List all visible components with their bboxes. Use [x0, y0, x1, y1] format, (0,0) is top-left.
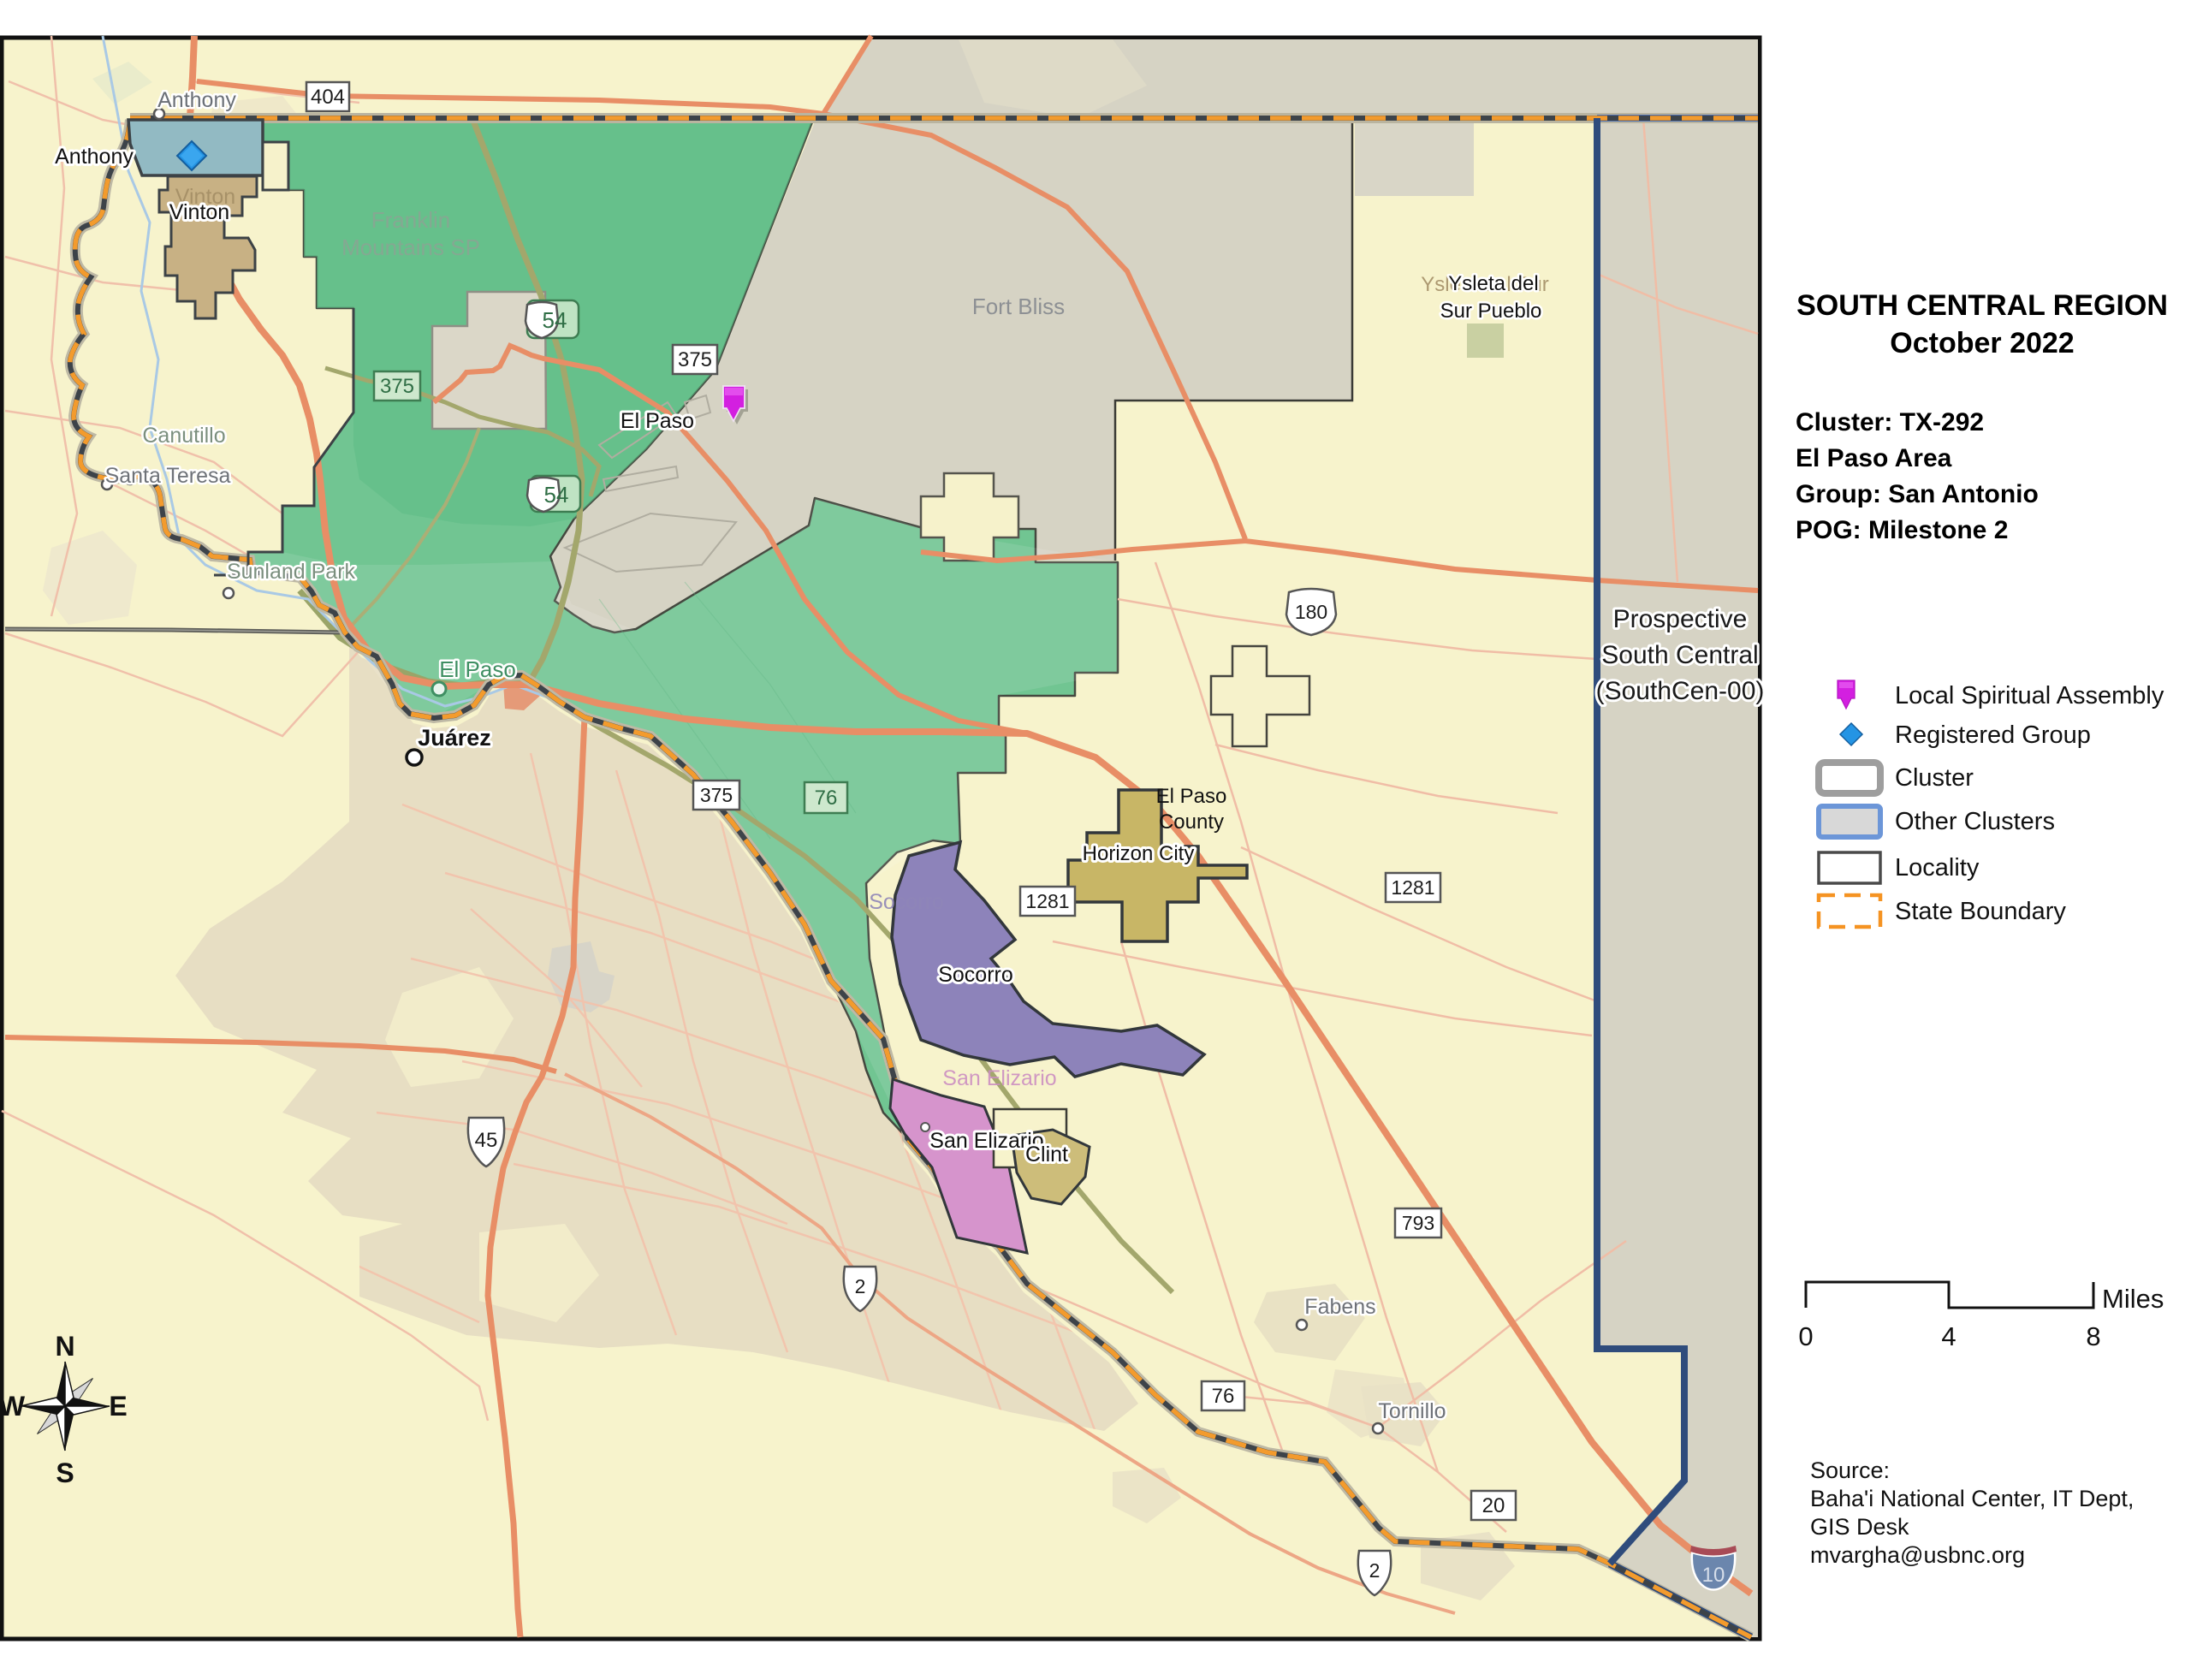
svg-text:Sur Pueblo: Sur Pueblo	[1440, 300, 1542, 323]
svg-text:Ysleta del: Ysleta del	[1448, 272, 1538, 295]
svg-text:2: 2	[855, 1275, 866, 1297]
svg-text:El Paso: El Paso	[620, 409, 694, 433]
svg-text:76: 76	[815, 787, 838, 810]
svg-text:S: S	[56, 1457, 74, 1488]
svg-text:Juárez: Juárez	[418, 725, 491, 751]
svg-text:mvargha@usbnc.org: mvargha@usbnc.org	[1810, 1542, 2025, 1568]
svg-text:793: 793	[1402, 1212, 1434, 1234]
svg-text:180: 180	[1295, 601, 1327, 623]
svg-text:Group: San Antonio: Group: San Antonio	[1796, 480, 2039, 508]
svg-text:Franklin: Franklin	[371, 207, 450, 233]
svg-text:E: E	[109, 1391, 127, 1422]
svg-text:375: 375	[678, 348, 712, 371]
svg-text:South Central: South Central	[1601, 641, 1758, 669]
svg-text:1281: 1281	[1391, 876, 1434, 899]
svg-text:San Elizario: San Elizario	[942, 1066, 1056, 1090]
svg-text:El Paso: El Paso	[439, 656, 516, 682]
svg-text:8: 8	[2086, 1321, 2100, 1351]
svg-text:Fort Bliss: Fort Bliss	[972, 294, 1065, 319]
svg-text:Other Clusters: Other Clusters	[1895, 808, 2055, 835]
svg-text:Santa Teresa: Santa Teresa	[105, 464, 231, 488]
svg-text:Clint: Clint	[1025, 1143, 1068, 1167]
svg-text:45: 45	[475, 1129, 498, 1152]
svg-text:W: W	[0, 1391, 26, 1422]
svg-text:N: N	[55, 1331, 74, 1362]
svg-text:20: 20	[1482, 1494, 1505, 1517]
svg-text:375: 375	[380, 375, 414, 398]
svg-text:Cluster: TX-292: Cluster: TX-292	[1796, 408, 1984, 436]
svg-text:375: 375	[700, 784, 733, 806]
svg-text:(SouthCen-00): (SouthCen-00)	[1596, 677, 1765, 705]
svg-text:10: 10	[1702, 1564, 1725, 1587]
svg-text:Locality: Locality	[1895, 854, 1980, 882]
svg-text:POG: Milestone 2: POG: Milestone 2	[1796, 516, 2008, 544]
svg-text:4: 4	[1941, 1321, 1956, 1351]
svg-text:Local Spiritual Assembly: Local Spiritual Assembly	[1895, 682, 2164, 709]
svg-text:2: 2	[1369, 1559, 1381, 1582]
svg-text:Miles: Miles	[2102, 1284, 2164, 1314]
svg-text:Anthony: Anthony	[157, 88, 236, 112]
svg-text:Socorro: Socorro	[938, 963, 1013, 987]
svg-text:Source:: Source:	[1810, 1457, 1890, 1483]
svg-text:Canutillo: Canutillo	[142, 424, 225, 448]
svg-text:54: 54	[543, 307, 567, 333]
svg-text:State Boundary: State Boundary	[1895, 898, 2066, 925]
svg-text:0: 0	[1798, 1321, 1813, 1351]
svg-text:Baha'i National Center, IT Dep: Baha'i National Center, IT Dept,	[1810, 1486, 2134, 1511]
svg-text:Mountains SP: Mountains SP	[341, 234, 480, 260]
svg-text:SOUTH CENTRAL REGION: SOUTH CENTRAL REGION	[1796, 289, 2168, 322]
svg-text:Vinton: Vinton	[169, 200, 229, 224]
svg-text:76: 76	[1212, 1385, 1235, 1408]
svg-text:Anthony: Anthony	[55, 145, 134, 169]
svg-text:Prospective: Prospective	[1613, 605, 1748, 633]
svg-text:Fabens: Fabens	[1304, 1295, 1375, 1319]
svg-text:County: County	[1159, 810, 1224, 834]
svg-text:Socorro: Socorro	[869, 890, 944, 914]
svg-text:Horizon City: Horizon City	[1083, 842, 1195, 865]
svg-text:1281: 1281	[1025, 890, 1069, 912]
svg-text:54: 54	[544, 482, 569, 508]
svg-text:GIS Desk: GIS Desk	[1810, 1514, 1909, 1540]
svg-text:Tornillo: Tornillo	[1378, 1399, 1446, 1423]
svg-text:El Paso Area: El Paso Area	[1796, 444, 1952, 472]
svg-text:October 2022: October 2022	[1890, 327, 2074, 359]
svg-text:El Paso: El Paso	[1156, 785, 1227, 808]
svg-text:Registered Group: Registered Group	[1895, 721, 2091, 749]
svg-text:Sunland Park: Sunland Park	[227, 560, 356, 584]
svg-text:404: 404	[311, 86, 345, 109]
svg-text:Cluster: Cluster	[1895, 764, 1974, 792]
